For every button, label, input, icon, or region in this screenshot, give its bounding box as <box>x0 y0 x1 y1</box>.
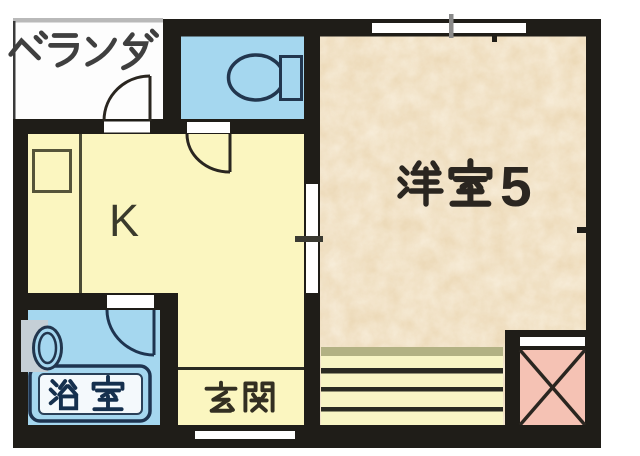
svg-text:5: 5 <box>500 155 532 219</box>
svg-text:K: K <box>109 195 139 246</box>
